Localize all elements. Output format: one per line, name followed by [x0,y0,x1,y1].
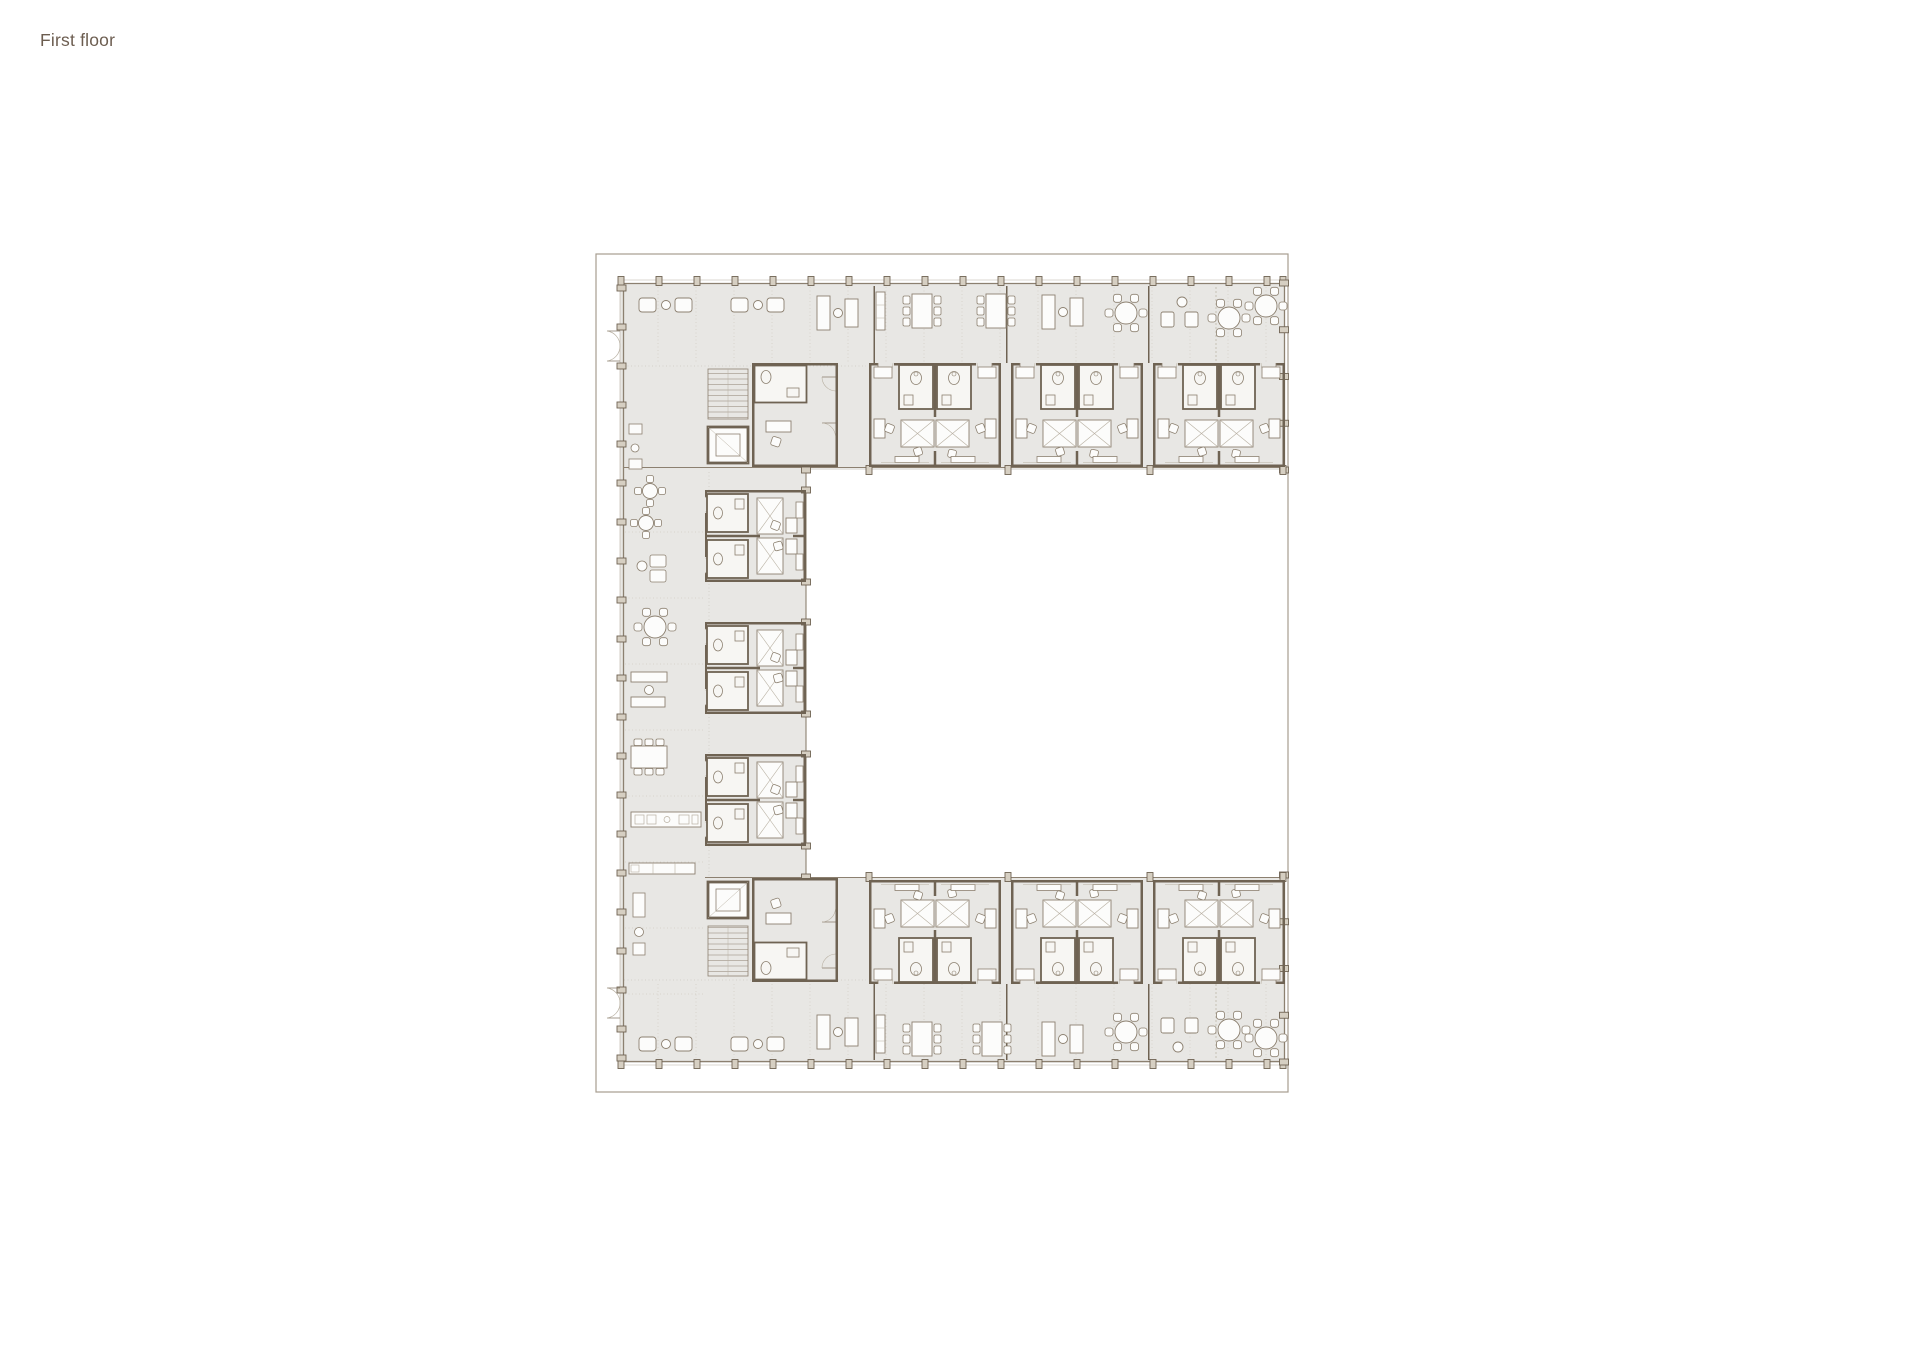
floor-plan-drawing [0,0,1920,1358]
page-title: First floor [40,30,115,51]
floor-plan-canvas [0,0,1920,1358]
